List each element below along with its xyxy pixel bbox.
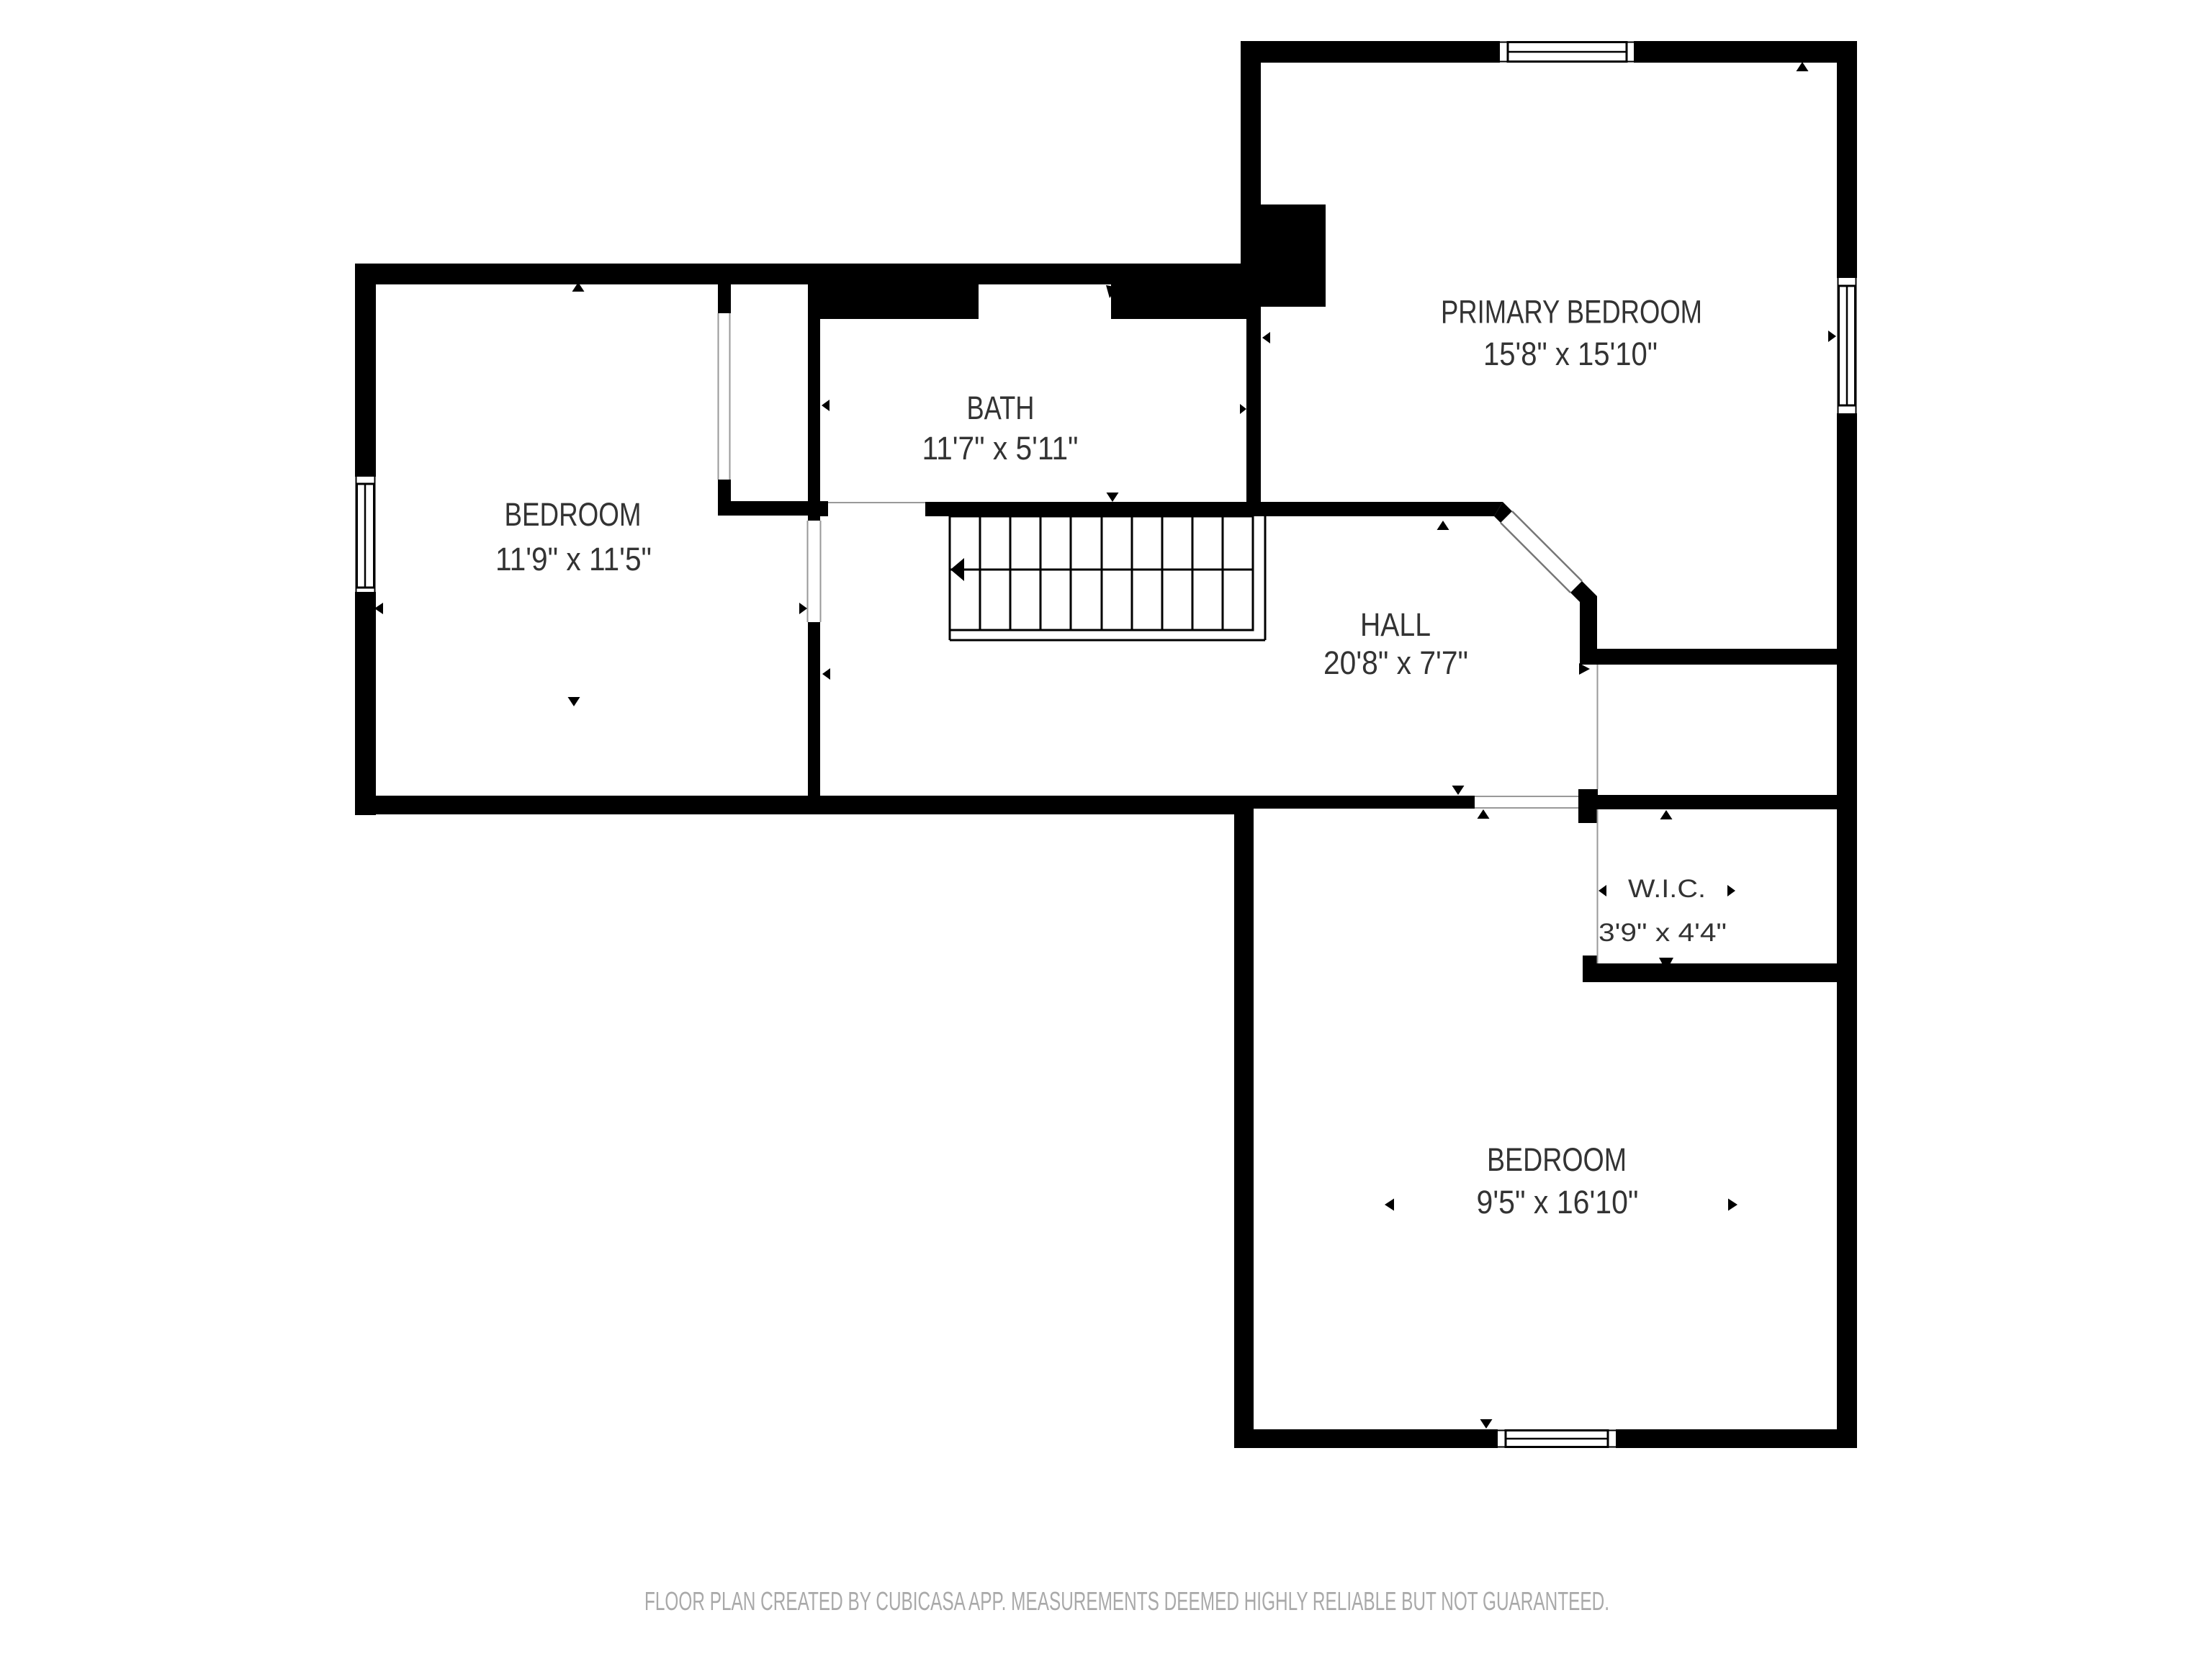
svg-text:11'9" x 11'5": 11'9" x 11'5": [495, 541, 652, 577]
svg-text:W.I.C.: W.I.C.: [1628, 875, 1706, 903]
svg-text:9'5" x 16'10": 9'5" x 16'10": [1477, 1184, 1639, 1220]
svg-text:BEDROOM: BEDROOM: [505, 496, 642, 533]
svg-text:3'9" x 4'4": 3'9" x 4'4": [1599, 919, 1727, 947]
svg-text:PRIMARY BEDROOM: PRIMARY BEDROOM: [1441, 294, 1702, 331]
svg-text:BEDROOM: BEDROOM: [1487, 1141, 1627, 1178]
svg-text:11'7" x 5'11": 11'7" x 5'11": [922, 430, 1079, 467]
svg-text:HALL: HALL: [1360, 606, 1431, 643]
svg-text:FLOOR PLAN CREATED BY CUBICASA: FLOOR PLAN CREATED BY CUBICASA APP. MEAS…: [644, 1586, 1609, 1616]
svg-text:15'8" x 15'10": 15'8" x 15'10": [1483, 336, 1658, 372]
svg-text:20'8" x 7'7": 20'8" x 7'7": [1323, 644, 1468, 681]
svg-text:BATH: BATH: [967, 390, 1035, 426]
